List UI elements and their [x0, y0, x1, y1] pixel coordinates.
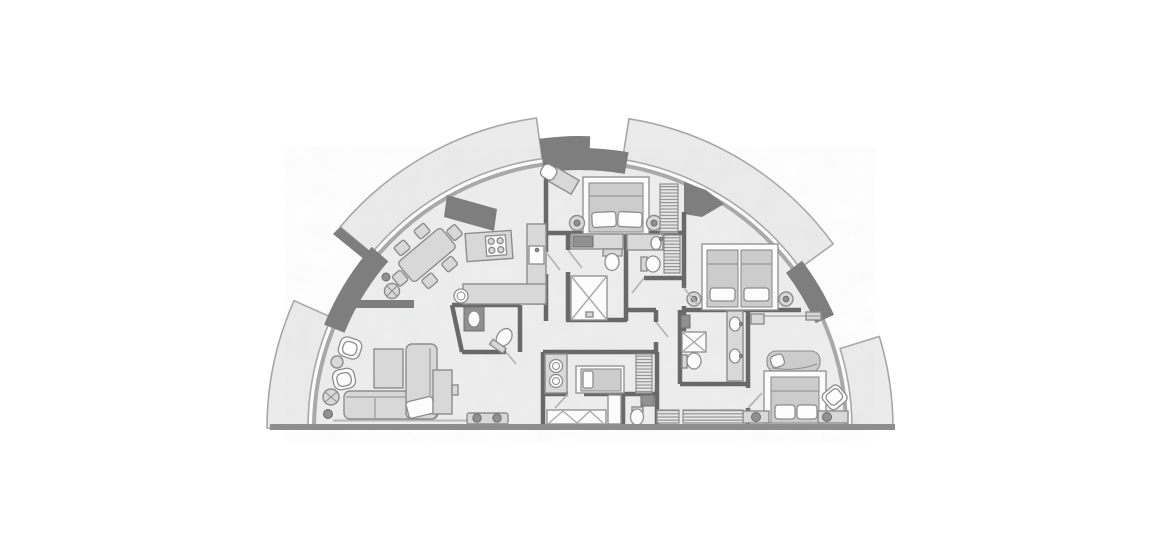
- pillow: [797, 405, 817, 419]
- toilet: [682, 353, 701, 369]
- wardrobe: [636, 354, 652, 393]
- vanity-basin: [573, 236, 593, 247]
- linen-cabinet: [664, 235, 680, 273]
- wardrobe: [660, 184, 678, 233]
- island-with-cooktop: [465, 230, 513, 261]
- nightstand: [570, 216, 585, 231]
- pillow: [710, 288, 735, 301]
- round-sink: [454, 289, 468, 303]
- pillow: [744, 288, 769, 301]
- rail-shelf: [751, 314, 764, 324]
- chaise-longue: [767, 351, 820, 372]
- nightstand: [779, 292, 793, 306]
- decor-table: [323, 389, 339, 405]
- side-table: [331, 356, 343, 368]
- coffee-table: [374, 349, 403, 388]
- bench: [467, 413, 508, 424]
- washbasin: [641, 395, 654, 406]
- floor-plan-page: [0, 0, 1170, 550]
- closet-run: [683, 410, 743, 423]
- pillow: [583, 371, 593, 388]
- bedside-cabinet: [743, 411, 769, 423]
- tall-cabinet: [608, 395, 621, 424]
- washbasin: [468, 311, 480, 327]
- console-table: [342, 300, 414, 308]
- pillow: [775, 405, 795, 419]
- nightstand: [647, 216, 662, 231]
- single-bed: [576, 366, 624, 393]
- washbasin: [681, 315, 690, 328]
- toilet: [641, 256, 660, 272]
- floor-plan-drawing: [0, 0, 1170, 550]
- bedside-cabinet: [818, 411, 848, 423]
- floor-lamp: [324, 410, 333, 419]
- bottom-exterior-wall: [270, 424, 895, 430]
- shower: [571, 276, 607, 320]
- toilet: [631, 409, 644, 425]
- shower: [682, 332, 706, 352]
- closet-run: [657, 410, 679, 423]
- pillow: [618, 211, 643, 227]
- pillow: [592, 211, 617, 227]
